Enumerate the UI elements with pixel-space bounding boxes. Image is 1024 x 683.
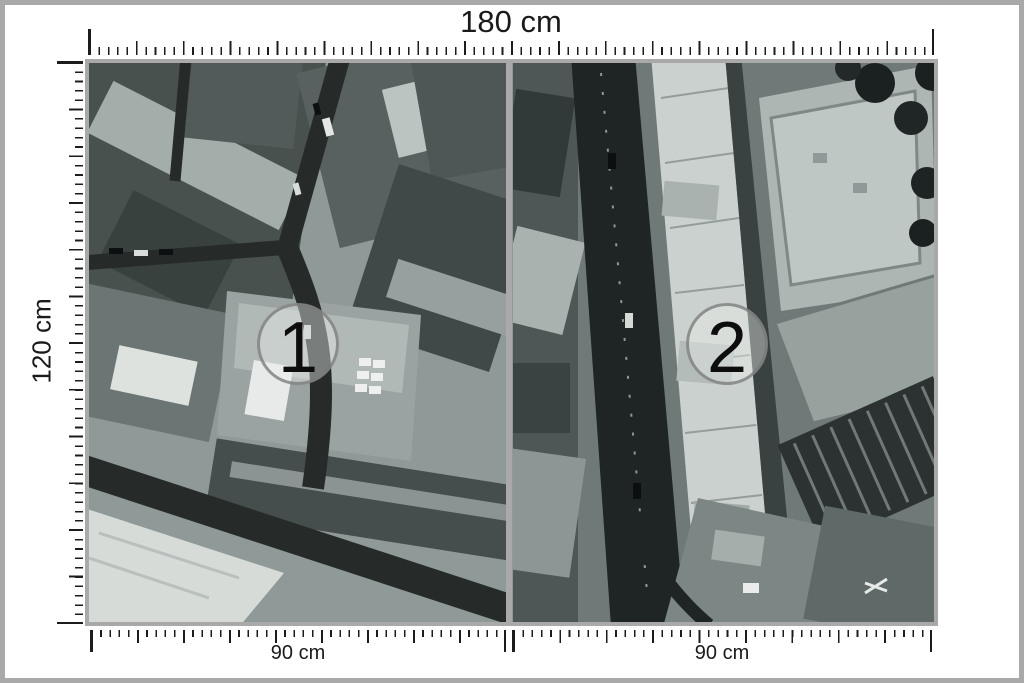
ruler-top: [89, 29, 933, 55]
ruler-end-tick: [57, 622, 83, 625]
total-height-label: 120 cm: [27, 298, 58, 383]
panel-1-width-label: 90 cm: [91, 641, 505, 665]
panel-2-width-label: 90 cm: [513, 641, 931, 665]
panel-1-number-badge: 1: [257, 303, 339, 385]
panel-number: 1: [278, 312, 318, 384]
ruler-end-tick: [57, 61, 83, 64]
ruler-left: [57, 62, 83, 623]
mural-preview: 1 2: [85, 59, 938, 626]
ruler-end-tick: [932, 29, 935, 55]
panel-2-number-badge: 2: [686, 303, 768, 385]
panel-divider: [506, 63, 512, 622]
ruler-end-tick: [88, 29, 91, 55]
product-dimension-diagram: 180 cm 120 cm: [0, 0, 1024, 683]
panel-number: 2: [707, 312, 747, 384]
